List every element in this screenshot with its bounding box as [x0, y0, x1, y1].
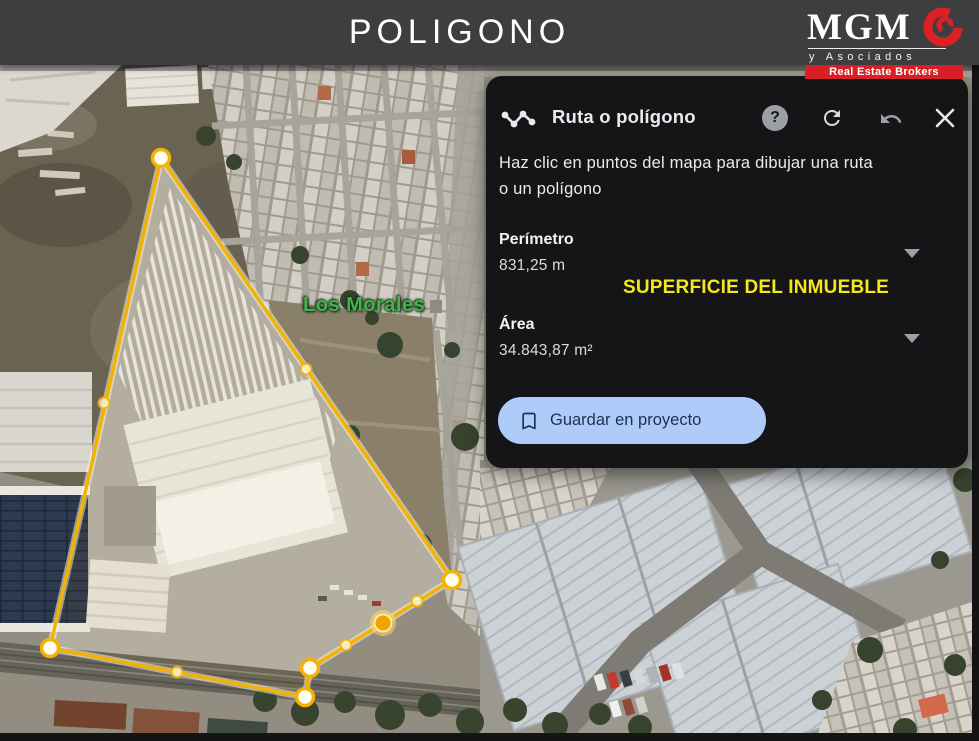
- redo-icon: [820, 106, 844, 130]
- help-button[interactable]: ?: [762, 105, 788, 131]
- logo-divider: [808, 48, 946, 49]
- undo-button[interactable]: [878, 106, 904, 132]
- area-value: 34.843,87 m²: [499, 342, 593, 360]
- chevron-down-icon: [904, 334, 920, 343]
- panel-instructions: Haz clic en puntos del mapa para dibujar…: [499, 150, 951, 202]
- panel-title: Ruta o polígono: [552, 106, 696, 128]
- perimeter-label: Perímetro: [499, 231, 574, 249]
- chevron-down-icon: [904, 249, 920, 258]
- area-unit-dropdown[interactable]: [900, 329, 924, 347]
- perimeter-unit-dropdown[interactable]: [900, 244, 924, 262]
- polygon-active-vertex[interactable]: [375, 615, 392, 632]
- logo-wordmark: MGM: [807, 6, 912, 49]
- measure-icon: [500, 107, 538, 131]
- polygon-vertex[interactable]: [153, 150, 170, 167]
- redo-button[interactable]: [819, 105, 845, 131]
- polygon-midpoint[interactable]: [301, 364, 312, 375]
- logo-swoosh-icon: [919, 4, 967, 52]
- save-button-label: Guardar en proyecto: [550, 411, 701, 430]
- polygon-midpoint[interactable]: [172, 667, 183, 678]
- save-to-project-button[interactable]: Guardar en proyecto: [498, 397, 766, 444]
- logo-tagline: Real Estate Brokers: [805, 65, 963, 79]
- polygon-vertex[interactable]: [297, 689, 314, 706]
- slide: Los Morales POLIGONO MGM y Asociados Rea…: [0, 0, 979, 741]
- polygon-midpoint[interactable]: [412, 596, 423, 607]
- polygon-midpoint[interactable]: [341, 640, 352, 651]
- close-icon: [933, 106, 957, 130]
- polygon-vertex[interactable]: [444, 572, 461, 589]
- perimeter-value: 831,25 m: [499, 257, 565, 275]
- logo-subtitle: y Asociados: [809, 51, 916, 63]
- close-button[interactable]: [932, 105, 958, 131]
- polygon-vertex[interactable]: [302, 660, 319, 677]
- area-label: Área: [499, 316, 535, 334]
- polygon-midpoint[interactable]: [99, 398, 110, 409]
- measure-panel: Ruta o polígono ? Haz clic en puntos del…: [486, 76, 968, 468]
- question-mark-icon: ?: [770, 109, 780, 127]
- polygon-vertex[interactable]: [42, 640, 59, 657]
- brand-logo: MGM y Asociados Real Estate Brokers: [805, 4, 970, 74]
- bookmark-icon: [519, 411, 539, 431]
- undo-icon: [879, 107, 903, 131]
- page-title: POLIGONO: [349, 13, 570, 52]
- surface-annotation: SUPERFICIE DEL INMUEBLE: [623, 277, 953, 299]
